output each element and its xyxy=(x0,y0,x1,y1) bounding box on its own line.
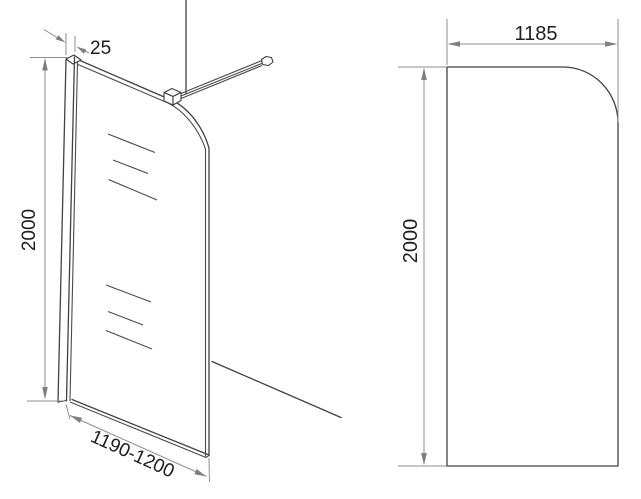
dim-profile-width: 25 xyxy=(44,30,111,60)
front-view: 1185 2000 xyxy=(398,19,618,466)
dim-width-range: 1190-1200 xyxy=(66,405,210,483)
glass-panel-front xyxy=(447,67,618,466)
dim-height-front: 2000 xyxy=(398,67,446,466)
glass-panel-perspective xyxy=(70,61,209,458)
profile-width-label: 25 xyxy=(90,38,111,59)
technical-drawing-canvas: 25 2000 1190-1200 xyxy=(0,0,641,499)
perspective-height-label: 2000 xyxy=(19,209,40,251)
drawing-svg: 25 2000 1190-1200 xyxy=(0,0,641,499)
support-bracket xyxy=(164,89,181,106)
wall-profile xyxy=(58,55,81,402)
wall-support-bar xyxy=(181,57,273,99)
glass-reflection-marks xyxy=(106,134,157,349)
front-width-label: 1185 xyxy=(514,23,557,45)
dim-width-front: 1185 xyxy=(447,19,618,122)
floor-line xyxy=(212,362,341,418)
dim-height-perspective: 2000 xyxy=(19,58,68,402)
perspective-view: 25 2000 1190-1200 xyxy=(19,0,341,482)
wall-profile-top-cap xyxy=(66,55,81,64)
wall-anchor-cap xyxy=(262,57,274,66)
front-height-label: 2000 xyxy=(400,219,422,264)
width-range-label: 1190-1200 xyxy=(87,426,177,482)
